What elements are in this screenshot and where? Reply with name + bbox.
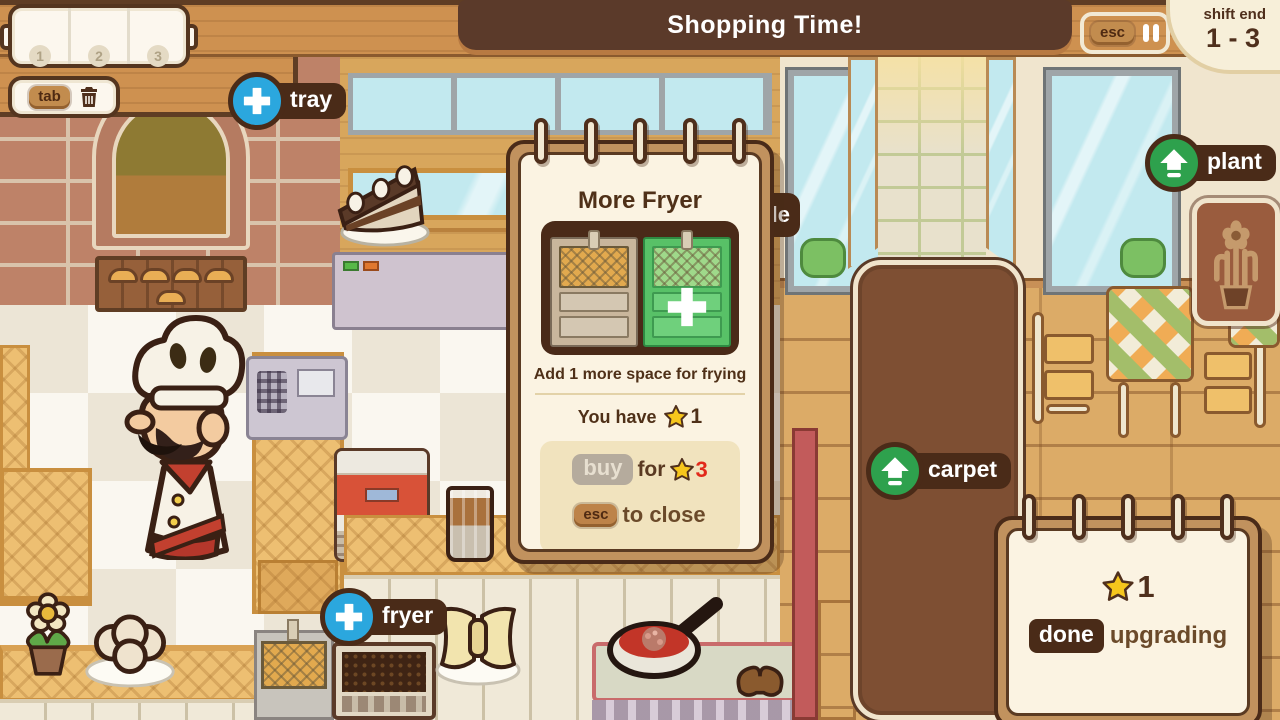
cactus-icon: [1204, 210, 1268, 314]
upgrading-label: upgrading: [1110, 622, 1227, 650]
phase-banner: Shopping Time!: [458, 0, 1072, 50]
plant-item-card[interactable]: [1192, 198, 1280, 326]
upgrade-description: Add 1 more space for frying: [521, 366, 759, 384]
oil-fryer: [332, 642, 436, 720]
table-label-text: le: [772, 202, 790, 228]
oven-mouth: [112, 100, 230, 238]
tray-slot-1[interactable]: 1: [12, 8, 71, 64]
done-panel: 1 done upgrading: [994, 516, 1262, 720]
upgrade-modal-title: More Fryer: [521, 187, 759, 215]
buy-fryer-button[interactable]: fryer: [320, 588, 447, 646]
upgrade-plant-button[interactable]: plant: [1145, 134, 1276, 192]
croissant: [108, 268, 138, 283]
buy-row[interactable]: buy for 3: [540, 454, 740, 485]
reward-stars-count: 1: [1137, 569, 1154, 605]
star-icon: [663, 404, 689, 430]
trash-icon[interactable]: [79, 86, 99, 108]
phase-banner-title: Shopping Time!: [667, 11, 862, 40]
door-glass-right: [986, 57, 1016, 269]
close-row[interactable]: esc to close: [540, 502, 740, 528]
door-glass-left: [848, 57, 878, 269]
shift-label: shift end: [1170, 6, 1270, 23]
discard-box: tab: [8, 76, 120, 118]
notepad-rings: [998, 494, 1258, 540]
upgrade-modal: More Fryer Add 1 more space for frying Y…: [506, 140, 774, 564]
tray-slots: 1 2 3: [8, 4, 190, 68]
wall-appliance: [332, 252, 530, 330]
plus-icon: [320, 588, 378, 646]
croissant: [204, 268, 234, 283]
tray-slot-3[interactable]: 3: [130, 8, 186, 64]
pause-box: esc: [1080, 12, 1170, 54]
chef-character: [112, 310, 262, 565]
bun-plate: [82, 608, 178, 695]
bush: [1120, 238, 1166, 278]
machine-display: [365, 488, 399, 502]
cake-display: [330, 150, 438, 253]
tray-slot-2[interactable]: 2: [71, 8, 130, 64]
shift-range: 1 - 3: [1170, 23, 1270, 54]
star-icon: [669, 457, 695, 483]
upgrade-preview-image: [541, 221, 739, 355]
pretzel: [732, 660, 788, 705]
iced-coffee-glass: [446, 486, 494, 562]
bread-shelf: [95, 256, 247, 312]
star-icon: [1101, 570, 1135, 604]
you-have-label: You have: [578, 407, 657, 428]
tray-panel: 1 2 3: [8, 4, 190, 68]
game-screen: 1 2 3 tab Shopping Time! esc shift end 1…: [0, 0, 1280, 720]
machine-screen: [297, 369, 335, 397]
dining-table: [1106, 286, 1194, 382]
plus-icon: [228, 72, 286, 130]
fry-basket: [261, 641, 327, 689]
buy-tray-button[interactable]: tray: [228, 72, 346, 130]
to-close-label: to close: [622, 502, 705, 528]
red-pillar: [792, 428, 818, 720]
pause-icon[interactable]: [1143, 24, 1159, 42]
owned-stars-count: 1: [691, 405, 703, 429]
reward-stars-row: 1: [1009, 569, 1247, 605]
fryer-oil: [342, 652, 426, 692]
cobblestone-path: [878, 57, 986, 261]
owned-stars-row: You have 1: [521, 404, 759, 430]
fryer-added: [643, 237, 731, 347]
slot-number: 1: [29, 45, 51, 67]
croissant: [140, 268, 170, 283]
for-label: for: [637, 458, 665, 482]
upgrade-carpet-button[interactable]: carpet: [866, 442, 1011, 500]
buy-key-button-disabled[interactable]: buy: [572, 454, 633, 485]
green-light: [343, 261, 359, 271]
side-shelf: [818, 600, 856, 720]
fryer-current: [550, 237, 638, 347]
chair-left: [1032, 312, 1098, 430]
notepad-rings: [510, 118, 770, 164]
upgrade-arrow-icon: [1145, 134, 1203, 192]
sauce-pan: [598, 592, 728, 697]
upgrade-arrow-icon: [866, 442, 924, 500]
entrance-door: [848, 57, 1016, 275]
orange-light: [363, 261, 379, 271]
left-cabinet: [0, 699, 262, 720]
esc-key-button[interactable]: esc: [1091, 22, 1134, 45]
slot-number: 3: [147, 45, 169, 67]
basket-handle: [287, 619, 299, 641]
bush: [800, 238, 846, 278]
flower-pot: [16, 590, 80, 683]
croissant: [172, 268, 202, 283]
chair-right: [1204, 340, 1266, 432]
slot-number: 2: [88, 45, 110, 67]
croissant: [156, 290, 186, 305]
divider: [535, 393, 744, 395]
done-row[interactable]: done upgrading: [1009, 619, 1247, 653]
action-box: buy for 3 esc to close: [540, 441, 740, 552]
cost-stars: 3: [695, 457, 707, 483]
upgrade-modal-paper: More Fryer Add 1 more space for frying Y…: [518, 152, 762, 552]
done-panel-paper: 1 done upgrading: [1006, 528, 1250, 716]
tab-key-button[interactable]: tab: [29, 86, 70, 109]
upper-cabinet: [0, 468, 92, 606]
done-key-button[interactable]: done: [1029, 619, 1104, 653]
plus-icon: [664, 284, 710, 335]
esc-key-button[interactable]: esc: [574, 504, 617, 527]
